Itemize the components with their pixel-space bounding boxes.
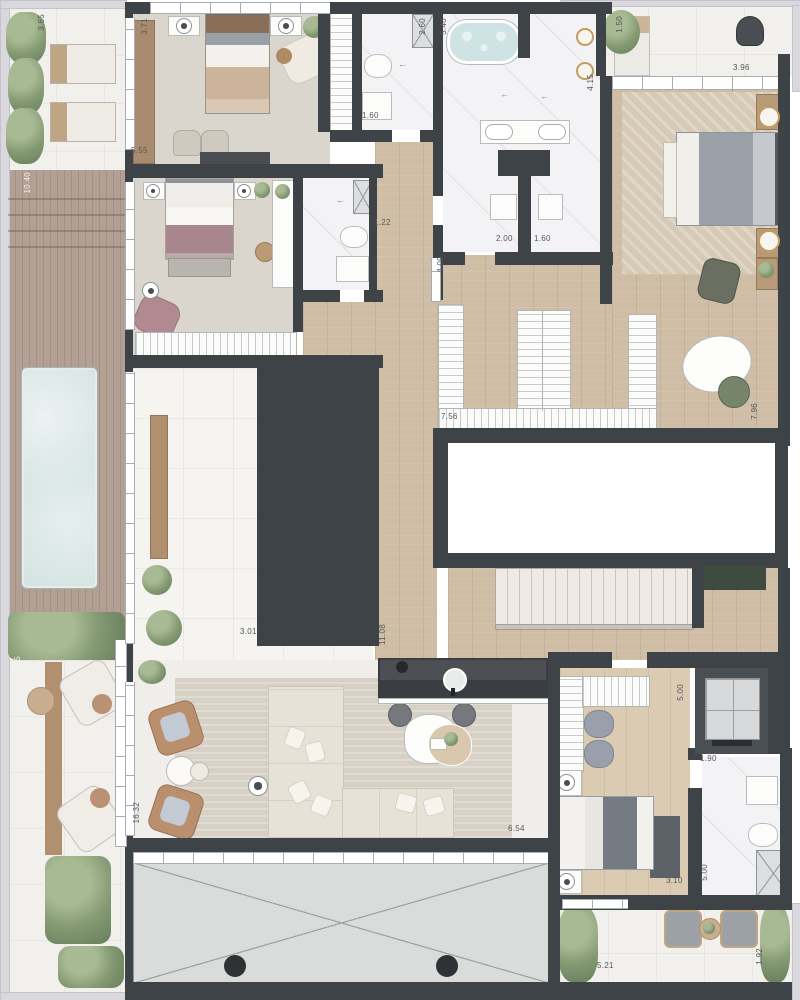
dimension-label-10.40: 10.40 [24,172,32,194]
wall [692,568,704,628]
staircase [495,568,694,626]
terrace-br-chair-1 [664,910,702,948]
bathroom3-vanity [746,776,778,805]
dimension-label-1.90: 1.90 [700,755,717,763]
master-sconce-2 [758,230,780,252]
living-floor-lamp [248,776,268,796]
window-band [125,182,135,330]
living-sofa-long [268,686,344,838]
wall [125,982,792,1000]
wall [688,788,702,905]
terrace-outer-frame-bottom [0,992,127,1000]
double-height-void [133,862,550,984]
bedroom3-lamp-top [558,774,575,791]
bedroom1-sideboard [133,20,155,164]
foyer-plant-2 [146,610,182,646]
terrace-outer-frame-right2 [792,903,800,1000]
bedroom3-runner-rug [650,816,680,878]
wall [548,652,612,668]
coffee-table-plant [444,732,458,746]
wall [433,428,788,443]
kitchen-faucet [451,688,455,696]
shower-head-icon: ← [540,92,549,101]
bedroom2-bench [168,258,231,277]
bedroom2-lamp-right [237,184,251,198]
dimension-label-1.50: 1.50 [616,16,624,33]
wall [125,838,560,852]
wall [433,443,448,568]
window-band [562,899,628,909]
dimension-label-5.40: 5.40 [440,18,448,35]
shower-head-icon: ← [398,60,407,69]
bedroom1-closet [330,12,353,132]
bathroom3-toilet [748,823,778,847]
bedroom3-closet-vertical [558,676,584,772]
master-bath-vanity-2 [538,194,563,220]
wall [778,568,790,660]
dimension-label-3.01: 3.01 [240,628,257,636]
shower-head-icon: ← [336,196,345,205]
patio-armchair-2-cushion [90,788,110,808]
window-band [125,18,135,150]
upper-void-white [448,443,775,553]
master-bed-bench [663,142,677,218]
service-elevator-door [712,740,752,746]
wall [518,2,530,58]
sun-lounger-2 [50,102,116,142]
bedroom1-chair-1 [173,130,201,156]
bedroom2-plant [254,182,270,198]
dimension-label-1.60: 1.60 [362,112,379,120]
deck-steps [8,196,125,248]
master-bath-sink-1 [485,124,513,140]
dimension-label-5.21: 5.21 [597,962,614,970]
void-column-1 [224,955,246,977]
dimension-label-2.00: 2.00 [496,235,513,243]
kitchen-stool-2 [452,703,476,727]
living-side-table-2 [190,762,209,781]
dimension-label-7.96: 7.96 [751,403,759,420]
terrace-br-plant-right [760,906,790,982]
bedroom1-lamp-left [176,18,192,34]
green-cabinet [704,566,766,590]
wall [125,164,383,178]
foyer-console [150,415,168,559]
bedroom3-pouf-2 [584,740,614,768]
wall [775,443,788,568]
wall [293,176,303,332]
wall [596,2,606,76]
dimension-label-16.32: 16.32 [133,802,141,824]
hedge-plant-3 [6,108,44,164]
bedroom1-bed [205,10,270,114]
staircase-railing [495,624,694,630]
dimension-label-5.55: 5.55 [131,147,148,155]
wall [778,54,790,446]
dimension-label-5.00: 5.00 [701,864,709,881]
window-band [125,372,135,644]
living-corner-plant [138,660,166,684]
wall-mirror-1 [576,28,594,46]
bathroom1-toilet [364,54,392,78]
bedroom2-floor-lamp [142,282,159,299]
wall [352,10,362,142]
wall [647,652,790,668]
terrace-outer-frame-top [0,0,127,9]
dimension-label-3.65: 3.65 [38,14,46,31]
terrace-tr-chair [736,16,764,46]
floor-plan: ← ← ← ← [0,0,800,1000]
foyer-plant-1 [142,565,172,595]
dimension-label-3.96: 3.96 [733,64,750,72]
dimension-label-6.54: 6.54 [508,825,525,833]
closet-bottom-run [438,408,657,430]
dimension-label-15.68: 15.68 [20,972,42,980]
void-column-2 [436,955,458,977]
master-bath-partition-v [518,176,531,252]
window-band [133,852,548,864]
dimension-label-1.22: 1.22 [374,219,391,227]
master-plant [758,262,774,278]
dimension-label-1.60: 1.60 [534,235,551,243]
wall [330,130,392,142]
hall-column-floor [375,302,437,662]
bedroom1-side-table [276,48,292,64]
elevator-shaft-walls [257,360,379,646]
bathroom2-vanity [336,256,369,282]
bedroom3-pouf-1 [584,710,614,738]
dimension-label-2.60: 2.60 [419,18,427,35]
master-bath-partition-h [498,150,550,176]
window-band [150,2,330,14]
wall [364,290,383,302]
dimension-label-9.45: 9.45 [14,656,22,673]
window-band [612,76,778,90]
patio-side-table [27,687,55,715]
wall [780,748,792,908]
kitchen-kettle [396,661,408,673]
terrace-br-table-plant [703,922,715,934]
sun-lounger-1 [50,44,116,84]
hedge-plant-2 [8,58,44,114]
dimension-label-11.08: 11.08 [379,624,387,645]
patio-planter-2 [58,946,124,988]
bedroom2-closet-floor [303,302,377,355]
bedroom2-bed [165,178,234,260]
swimming-pool [22,368,97,588]
dimension-label-3.71: 3.71 [141,18,149,35]
bedroom3-bed [558,796,654,870]
bedroom3-closet-horizontal [582,676,650,707]
service-elevator-cab [705,678,760,740]
wall [548,652,560,1000]
master-bath-sink-2 [538,124,566,140]
wall [293,290,340,302]
bedroom1-lamp-right [278,18,294,34]
dimension-label-3.10: 3.10 [666,877,683,885]
closet-column-1 [438,304,464,412]
wall [318,10,330,132]
terrace-br-plant-left [558,906,598,982]
bedroom2-wardrobe [135,332,297,357]
dimension-label-1.92: 1.92 [756,948,764,965]
master-sconce-1 [758,106,780,128]
wall [369,176,377,300]
terrace-br-chair-2 [720,910,758,948]
master-bath-tub [447,20,521,64]
closet-column-2 [517,310,571,414]
dimension-label-7.56: 7.56 [441,413,458,421]
kitchen-counter-rim [378,698,550,704]
bedroom2-lamp-left [146,184,160,198]
patio-planter-1 [45,856,111,944]
planting-strip [8,612,125,660]
dimension-label-4.09: 4.09 [437,256,445,273]
patio-armchair-1-cushion [92,694,112,714]
kitchen-sink [443,668,467,692]
terrace-outer-frame-right1 [792,5,800,92]
bathroom2-toilet [340,226,368,248]
wall [768,668,790,754]
shower-head-icon: ← [500,90,509,99]
bedroom3-lamp-bottom [558,873,575,890]
dimension-label-5.00: 5.00 [677,684,685,701]
bedroom2-desk-plant [275,184,290,199]
master-bath-vanity-1 [490,194,517,220]
wall [420,130,443,142]
closet-column-2-divider [542,311,543,411]
wall [495,252,613,265]
closet-desk-chair [718,376,750,408]
master-bed [676,132,782,226]
dimension-label-4.15: 4.15 [587,74,595,91]
wall [600,76,612,304]
